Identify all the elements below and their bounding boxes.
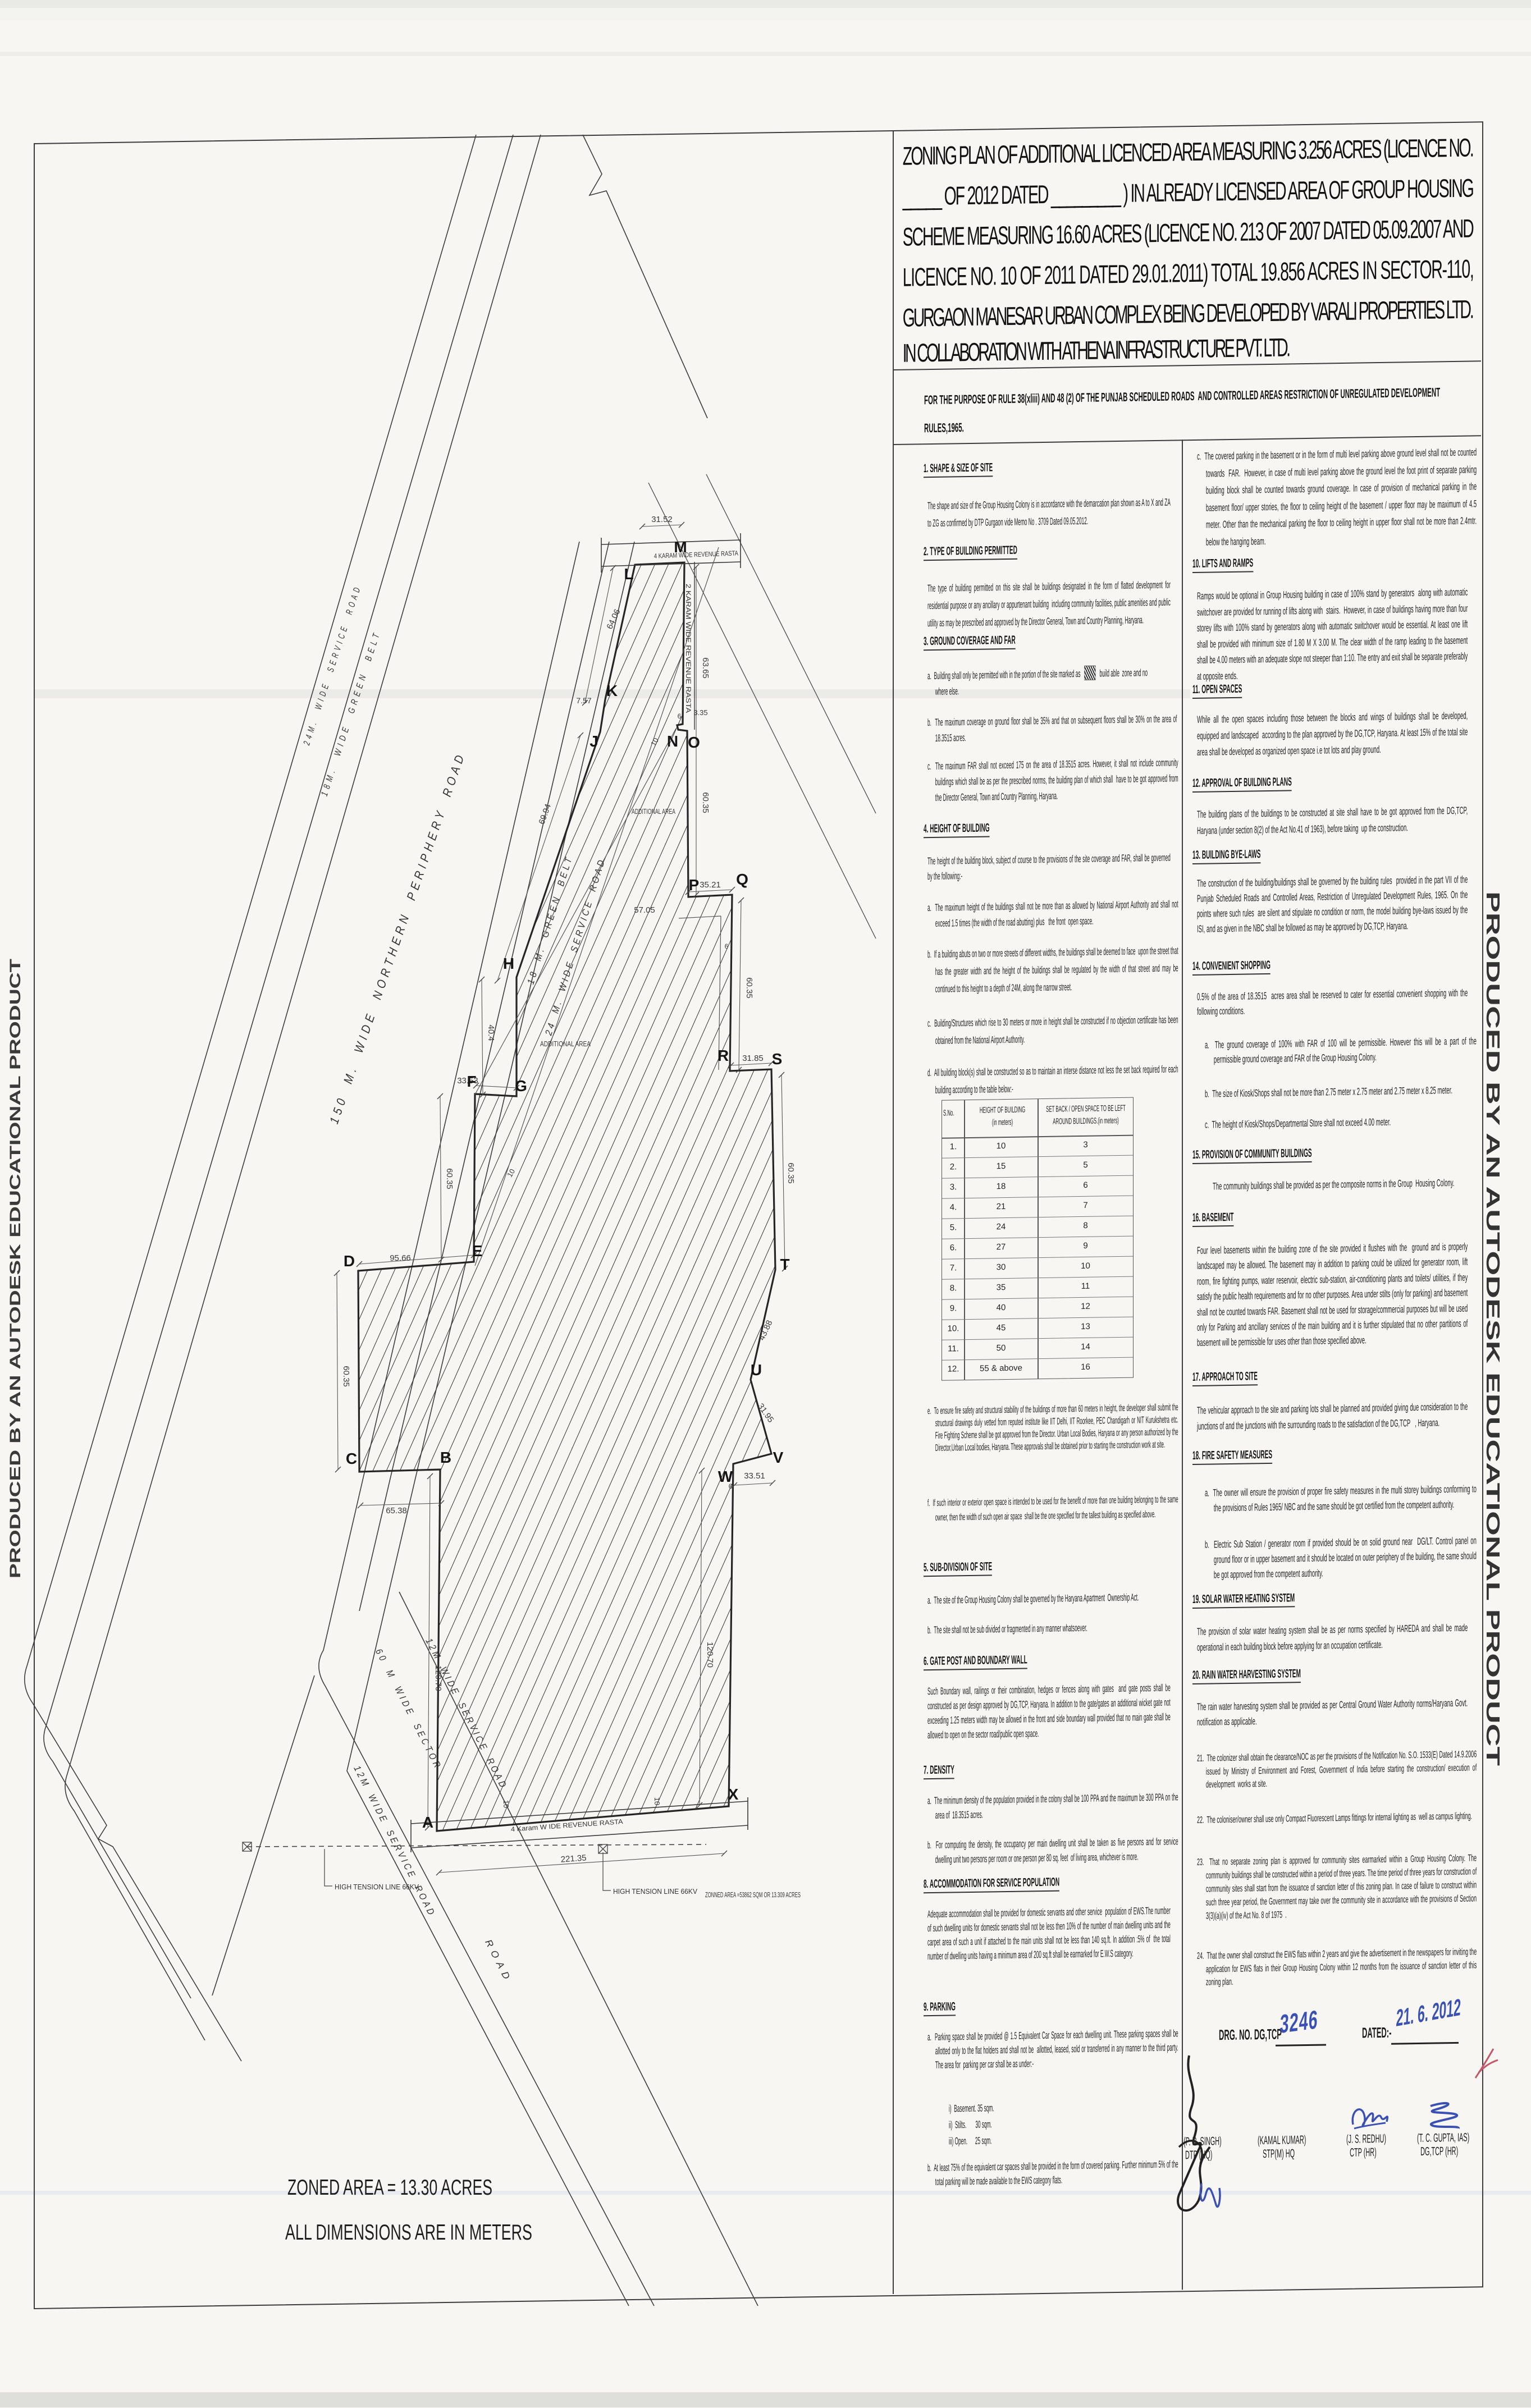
svg-text:120.70: 120.70 — [705, 1642, 715, 1668]
svg-text:12M WIDE SERVICE ROAD: 12M WIDE SERVICE ROAD — [351, 1764, 437, 1919]
svg-text:63.65: 63.65 — [701, 657, 710, 679]
svg-text:10: 10 — [502, 1800, 510, 1808]
svg-text:PRODUCED BY AN AUTODESK EDUCAT: PRODUCED BY AN AUTODESK EDUCATIONAL PROD… — [1483, 891, 1503, 1766]
svg-text:65.38: 65.38 — [386, 1506, 407, 1516]
svg-text:6: 6 — [725, 942, 729, 950]
svg-text:ZONNED AREA =53862 SQM OR 13.3: ZONNED AREA =53862 SQM OR 13.309 ACRES — [705, 1890, 801, 1899]
svg-text:120.70: 120.70 — [433, 1665, 443, 1691]
svg-text:HIGH TENSION LINE 66KV: HIGH TENSION LINE 66KV — [335, 1883, 419, 1891]
svg-text:6: 6 — [678, 712, 682, 720]
svg-text:PRODUCED BY AN AUTODESK EDUCAT: PRODUCED BY AN AUTODESK EDUCATIONAL PROD… — [7, 958, 24, 1578]
svg-text:M: M — [674, 538, 687, 556]
svg-text:W: W — [718, 1468, 733, 1485]
svg-text:A: A — [422, 1814, 433, 1831]
svg-text:O: O — [688, 734, 700, 751]
svg-text:7.57: 7.57 — [576, 696, 591, 705]
svg-text:221.35: 221.35 — [560, 1853, 587, 1864]
svg-text:40.4: 40.4 — [486, 1024, 496, 1041]
svg-text:ZONED AREA = 13.30 ACRES: ZONED AREA = 13.30 ACRES — [287, 2176, 492, 2200]
svg-text:L: L — [624, 565, 633, 583]
svg-text:33.51: 33.51 — [744, 1471, 765, 1481]
svg-text:Q: Q — [736, 871, 748, 888]
svg-text:ADDITIONAL AREA: ADDITIONAL AREA — [540, 1040, 591, 1048]
svg-text:H: H — [503, 955, 514, 972]
svg-text:S: S — [772, 1050, 783, 1068]
svg-text:F: F — [467, 1073, 476, 1090]
svg-text:ROAD: ROAD — [483, 1938, 514, 1985]
svg-text:35.21: 35.21 — [700, 880, 721, 890]
svg-text:HIGH TENSION LINE 66KV: HIGH TENSION LINE 66KV — [613, 1887, 697, 1896]
svg-text:E: E — [472, 1242, 483, 1260]
svg-text:J: J — [589, 733, 598, 750]
svg-text:B: B — [440, 1449, 451, 1466]
svg-text:60.35: 60.35 — [701, 792, 710, 813]
svg-text:60 M WIDE SECTOR: 60 M WIDE SECTOR — [373, 1647, 444, 1771]
svg-text:57.05: 57.05 — [634, 905, 655, 915]
svg-text:ADDITIONAL AREA: ADDITIONAL AREA — [632, 807, 675, 816]
svg-text:31.52: 31.52 — [651, 515, 673, 524]
svg-text:69.94: 69.94 — [537, 803, 553, 826]
svg-text:X: X — [728, 1786, 739, 1803]
svg-text:G: G — [515, 1077, 527, 1095]
svg-text:60.35: 60.35 — [786, 1162, 796, 1184]
svg-text:64.06: 64.06 — [605, 607, 622, 630]
svg-text:2 KARAM WIDE REVENUE RASTA: 2 KARAM WIDE REVENUE RASTA — [684, 584, 692, 713]
svg-text:31.85: 31.85 — [742, 1054, 764, 1063]
svg-text:ALL DIMENSIONS ARE IN METERS: ALL DIMENSIONS ARE IN METERS — [285, 2221, 532, 2245]
svg-text:3.35: 3.35 — [693, 708, 707, 717]
svg-text:U: U — [751, 1361, 762, 1379]
svg-text:95.66: 95.66 — [390, 1253, 411, 1263]
svg-text:60.35: 60.35 — [341, 1366, 351, 1387]
svg-text:150 M. WIDE NORTHERN PERIPH: 150 M. WIDE NORTHERN PERIPHERY ROAD — [327, 750, 468, 1126]
svg-text:T: T — [780, 1256, 789, 1273]
svg-text:V: V — [773, 1449, 784, 1466]
svg-text:24M. WIDE SERVICE ROAD: 24M. WIDE SERVICE ROAD — [301, 583, 363, 747]
svg-text:4 KARAM WIDE REVENUE RASTA: 4 KARAM WIDE REVENUE RASTA — [654, 549, 738, 560]
svg-text:60.35: 60.35 — [445, 1168, 454, 1189]
svg-text:D: D — [344, 1252, 355, 1270]
svg-text:10: 10 — [653, 1797, 661, 1805]
svg-text:60.35: 60.35 — [744, 977, 754, 999]
svg-text:C: C — [346, 1450, 357, 1467]
svg-text:P: P — [689, 876, 700, 894]
svg-text:K: K — [606, 682, 618, 699]
svg-text:R: R — [717, 1047, 729, 1064]
svg-text:N: N — [667, 733, 678, 750]
